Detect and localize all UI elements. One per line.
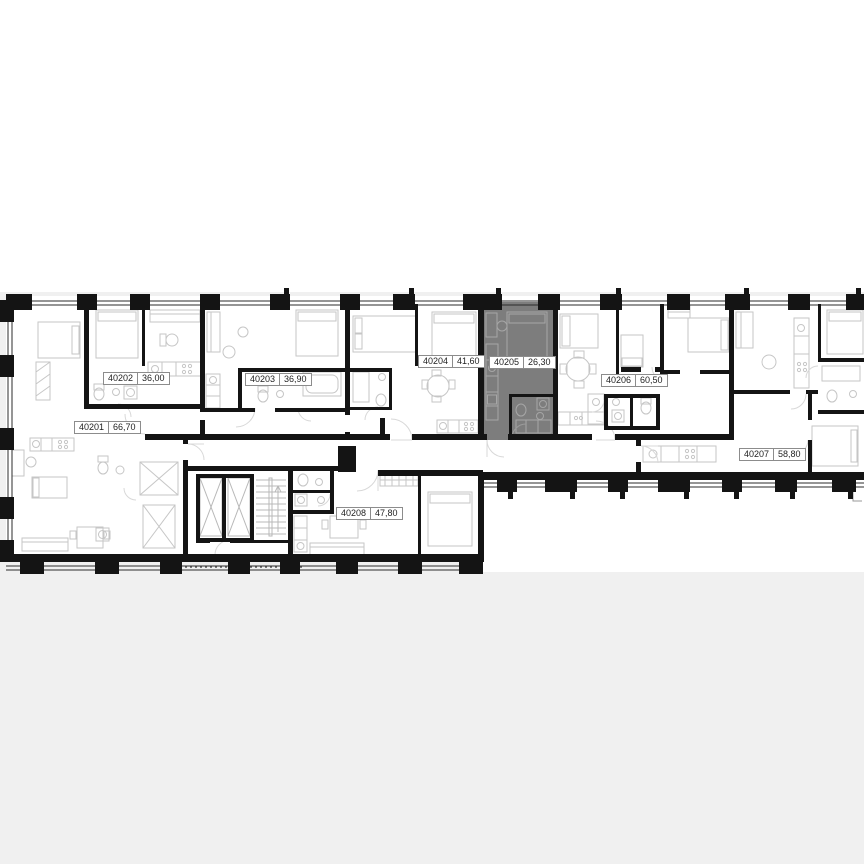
unit-area: 47,80 (370, 508, 402, 519)
unit-area: 36,00 (137, 373, 169, 384)
unit-number: 40202 (104, 373, 137, 384)
unit-label-40208[interactable]: 40208 47,80 (336, 507, 403, 520)
unit-label-40201[interactable]: 40201 66,70 (74, 421, 141, 434)
unit-labels-layer: 40201 66,70 40202 36,00 40203 36,90 4020… (0, 0, 864, 864)
unit-number: 40207 (740, 449, 773, 460)
unit-label-40202[interactable]: 40202 36,00 (103, 372, 170, 385)
unit-label-40203[interactable]: 40203 36,90 (245, 373, 312, 386)
unit-area: 66,70 (108, 422, 140, 433)
unit-label-40206[interactable]: 40206 60,50 (601, 374, 668, 387)
unit-number: 40203 (246, 374, 279, 385)
unit-area: 26,30 (523, 357, 555, 368)
unit-number: 40205 (490, 357, 523, 368)
unit-area: 60,50 (635, 375, 667, 386)
unit-number: 40201 (75, 422, 108, 433)
unit-number: 40206 (602, 375, 635, 386)
unit-label-40207[interactable]: 40207 58,80 (739, 448, 806, 461)
unit-label-40204[interactable]: 40204 41,60 (418, 355, 485, 368)
unit-label-40205[interactable]: 40205 26,30 (489, 356, 556, 369)
unit-number: 40204 (419, 356, 452, 367)
floorplan-viewer: 40201 66,70 40202 36,00 40203 36,90 4020… (0, 0, 864, 864)
unit-area: 58,80 (773, 449, 805, 460)
unit-area: 36,90 (279, 374, 311, 385)
unit-number: 40208 (337, 508, 370, 519)
unit-area: 41,60 (452, 356, 484, 367)
